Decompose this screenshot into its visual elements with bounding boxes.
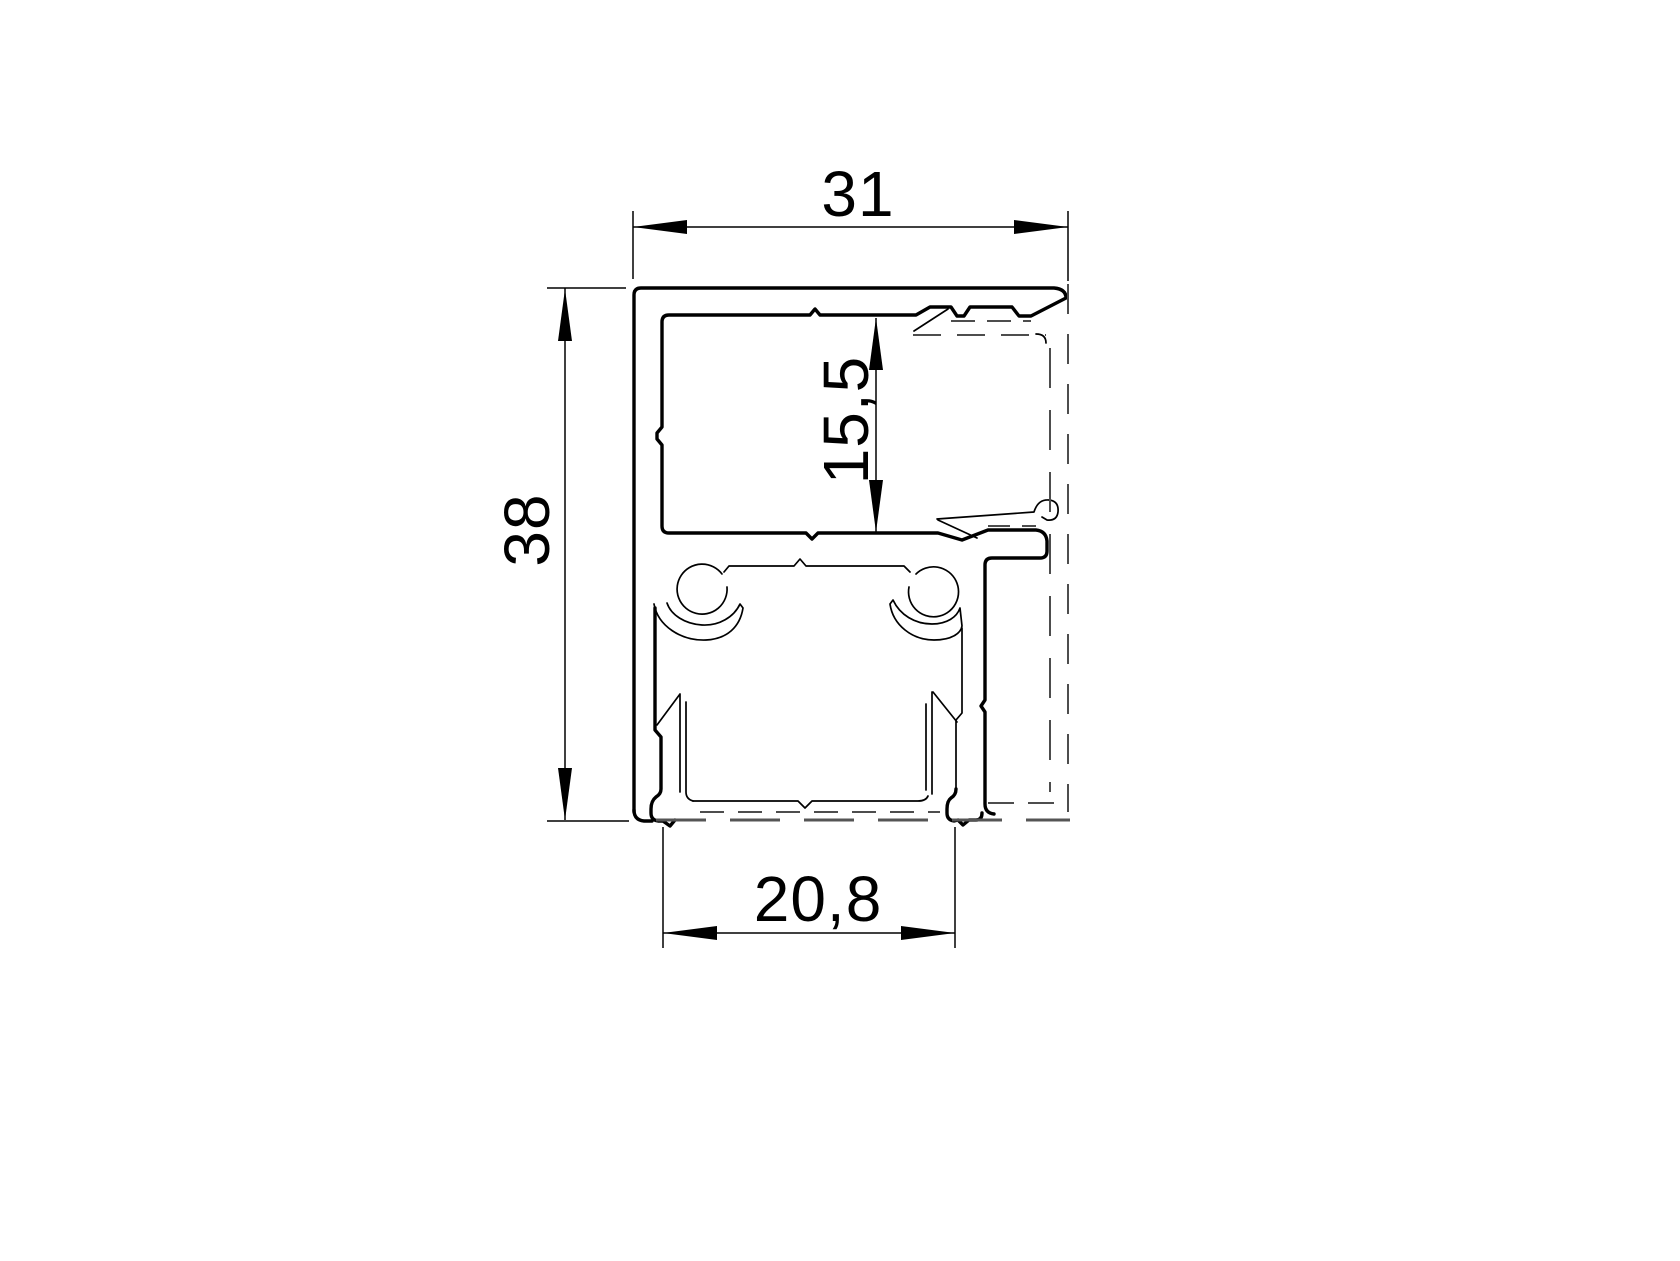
channel-bottom-line (693, 796, 928, 808)
dim-left-height-label: 38 (491, 493, 563, 566)
right-chamber-wall (956, 628, 962, 789)
profile-cross-section-drawing: 31 38 15,5 20,8 (0, 0, 1680, 1261)
arrowhead-bottom (869, 480, 883, 532)
dimension-bottom-channel: 20,8 (663, 827, 955, 948)
dim-inner-depth-label: 15,5 (810, 356, 882, 485)
arrowhead-left (633, 220, 687, 234)
drawing-canvas: 31 38 15,5 20,8 (0, 0, 1680, 1261)
left-screw-boss-circle (677, 564, 727, 614)
dim-bottom-channel-label: 20,8 (754, 863, 883, 935)
left-screw-boss-flange (654, 603, 743, 640)
arrowhead-right (901, 926, 955, 940)
arrowhead-top (558, 289, 572, 341)
right-screw-boss-flange (890, 600, 962, 640)
arrowhead-left (663, 926, 717, 940)
dimension-left-height: 38 (491, 288, 629, 821)
upper-clip-flange-edge (914, 309, 1046, 343)
right-screw-boss-circle (909, 567, 959, 617)
arrowhead-right (1014, 220, 1068, 234)
dim-top-width-label: 31 (821, 158, 894, 230)
chamber-top-line (724, 559, 910, 572)
dimension-inner-depth: 15,5 (810, 318, 883, 532)
arrowhead-bottom (558, 768, 572, 820)
right-spring-leg (926, 692, 957, 794)
dimension-top-width: 31 (633, 158, 1068, 281)
